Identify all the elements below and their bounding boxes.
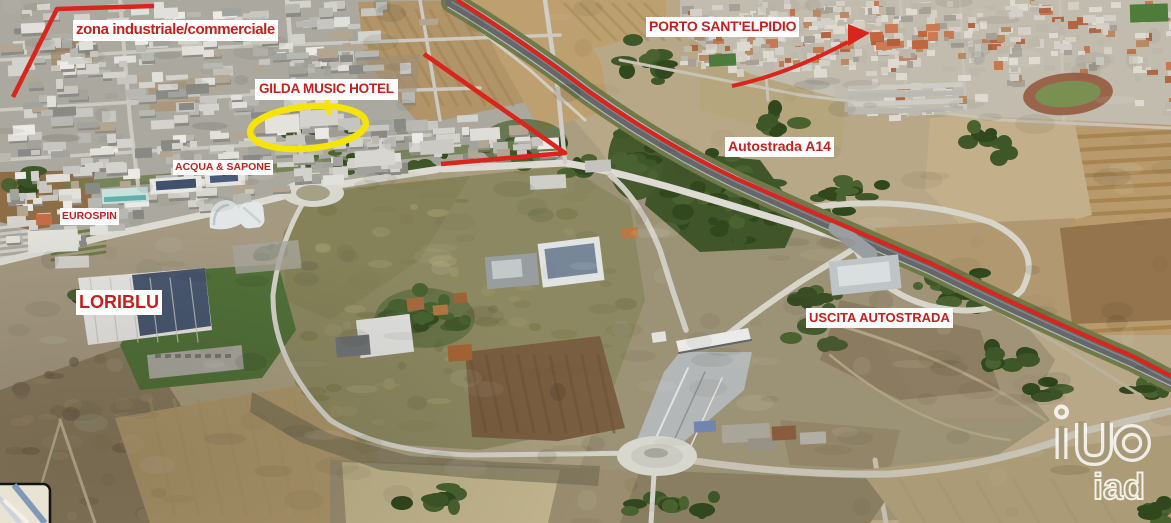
svg-text:iad: iad [1093,466,1145,507]
